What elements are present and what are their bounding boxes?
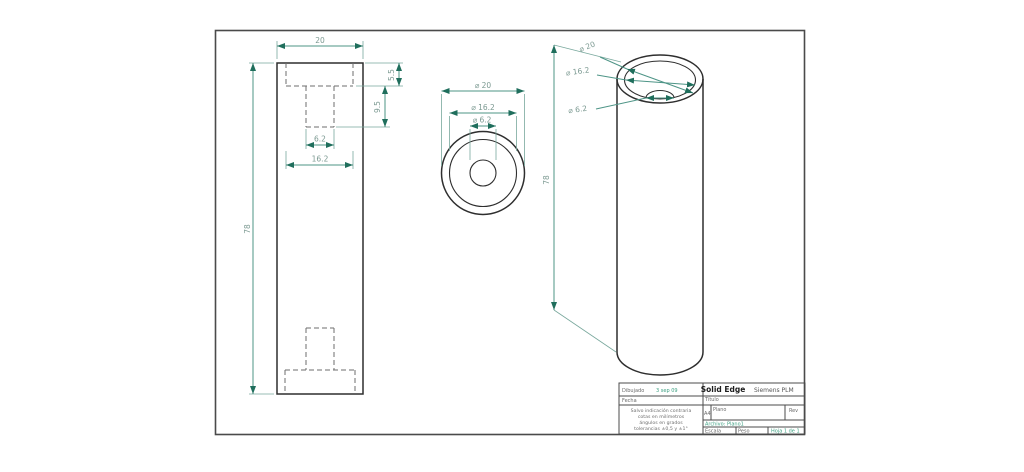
vendor-name: Siemens PLM	[754, 387, 794, 394]
sheet-size: A4	[704, 411, 711, 417]
tolerance-line-2: cotas en milímetros	[638, 413, 685, 420]
app-name: Solid Edge	[701, 385, 746, 394]
dim-front-cb-depth: 5.5	[387, 69, 396, 81]
tolerance-line-3: ángulos en grados	[639, 419, 683, 426]
weight-label: Peso	[738, 429, 750, 435]
dim-front-hole-depth: 9.5	[373, 101, 382, 113]
plan-label: Plano	[713, 407, 726, 413]
date-label: Fecha	[622, 398, 637, 404]
dim-front-hole-width: 6.2	[314, 135, 326, 144]
dim-front-width: 20	[315, 36, 325, 45]
dim-iso-height: 78	[542, 175, 551, 185]
rev-label: Rev	[789, 408, 798, 414]
dim-front-height: 78	[243, 224, 252, 234]
tolerance-line-1: Salvo indicación contraria	[631, 407, 692, 414]
drawing-canvas: 20 78 5.5 9.5 6.2 16.2 ⌀ 20 ⌀ 16.2 ⌀ 6.	[0, 0, 1024, 472]
drawn-label: Dibujado	[622, 388, 644, 394]
sheet-count-label: Hoja 1 de 1	[771, 429, 800, 435]
file-label: Archivo: Plano1	[705, 422, 744, 428]
title-label: Título	[704, 396, 719, 403]
dim-top-hole: ⌀ 6.2	[473, 116, 492, 125]
drawing-sheet: 20 78 5.5 9.5 6.2 16.2 ⌀ 20 ⌀ 16.2 ⌀ 6.	[0, 0, 1024, 472]
drawn-value: 3 sep 09	[656, 388, 678, 394]
tolerance-line-4: tolerancias ±0,5 y ±1°	[634, 426, 688, 432]
dim-front-cb-width: 16.2	[312, 155, 329, 164]
dim-top-cb: ⌀ 16.2	[471, 103, 495, 112]
scale-label: Escala	[705, 429, 721, 435]
dim-top-outer: ⌀ 20	[475, 81, 492, 90]
